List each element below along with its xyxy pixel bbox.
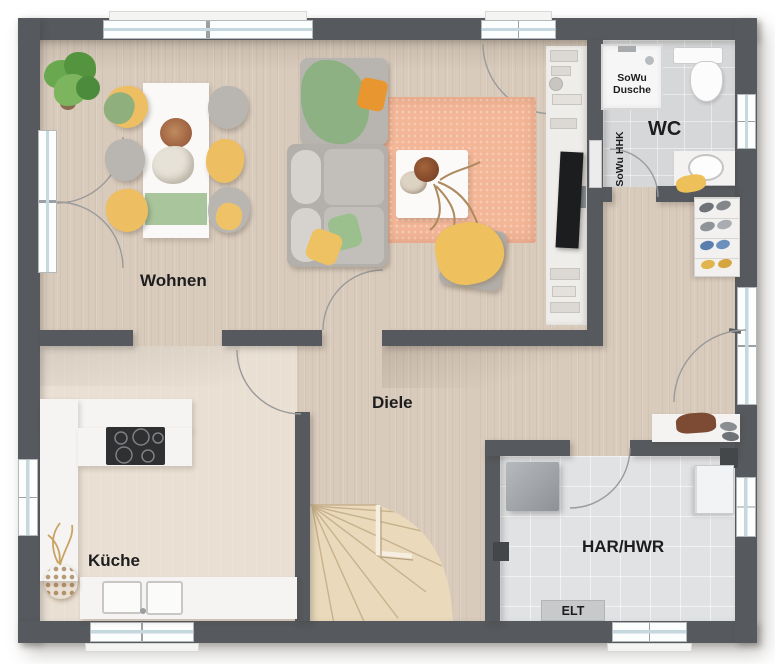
wall-wohnen-diele	[382, 330, 587, 346]
room-label-wc: WC	[648, 118, 681, 141]
shelf-item	[550, 302, 580, 313]
dryer	[694, 465, 734, 514]
wall-stairs-kueche	[295, 412, 310, 621]
shadow-diele-wall	[382, 346, 587, 388]
plant-leaf	[76, 76, 100, 100]
sofa-back-cushion	[291, 150, 321, 204]
floor-plan: ELT Wohnen Diele Küche WC HAR/HWR SoWu D…	[0, 0, 775, 664]
sofa-seat-cushion	[324, 149, 384, 205]
wall-har-top-left	[485, 440, 570, 456]
door-entrance	[737, 287, 757, 405]
shelf-item	[551, 66, 571, 76]
shower-drain	[645, 56, 654, 65]
shelf-item-round	[549, 77, 563, 91]
room-label-diele: Diele	[372, 393, 413, 413]
room-label-kueche: Küche	[88, 551, 140, 571]
window-sill-har-bottom	[607, 643, 692, 652]
window-wohnen-top	[103, 20, 313, 39]
shelf-item	[552, 94, 582, 105]
window-kueche-left	[18, 459, 38, 536]
window-har-bottom	[612, 622, 687, 642]
shelf-item	[552, 286, 576, 297]
elt-panel: ELT	[541, 600, 605, 621]
kitchen-sink	[102, 581, 142, 614]
centerpiece-bowl	[160, 118, 192, 148]
door-terrace-top	[481, 20, 556, 39]
cooktop	[106, 427, 165, 465]
centerpiece-flowers	[152, 146, 194, 184]
french-door-wohnen-left	[38, 130, 57, 273]
room-label-har-hwr: HAR/HWR	[582, 537, 664, 557]
shelf-item	[550, 268, 580, 280]
window-har-right	[736, 477, 756, 537]
duct-box-har-left	[493, 542, 509, 561]
potted-plant	[42, 50, 104, 118]
room-label-wohnen: Wohnen	[140, 271, 207, 291]
window-kueche-bottom	[90, 622, 194, 642]
toilet-bowl	[690, 61, 723, 102]
washing-machine	[506, 462, 559, 511]
wall-har-left	[485, 440, 500, 621]
annotation-sowu-hhk: SoWu HHK	[614, 124, 626, 194]
towel-radiator	[589, 140, 602, 188]
shower-fitting	[618, 46, 636, 52]
window-sill-kueche-bottom	[85, 643, 199, 652]
handbag	[675, 412, 716, 435]
annotation-sowu-dusche: SoWu Dusche	[606, 72, 658, 96]
kitchen-sink	[146, 581, 183, 615]
wall-wc-hall-left	[603, 187, 612, 202]
elt-label: ELT	[562, 604, 585, 618]
shadow-kitchen-wall	[40, 346, 240, 386]
wall-left-exterior	[18, 18, 40, 643]
shelf-item	[550, 118, 577, 129]
kitchen-faucet	[140, 608, 146, 614]
table-runner	[145, 193, 207, 225]
window-wc-right	[737, 94, 756, 149]
kitchen-counter-left	[40, 399, 78, 581]
fruit-bowl	[44, 565, 78, 599]
wall-wohnen-kueche	[40, 330, 133, 346]
wall-kueche-diele	[222, 330, 322, 346]
shelf-item	[550, 50, 578, 62]
decor-bowl-copper	[414, 157, 439, 182]
